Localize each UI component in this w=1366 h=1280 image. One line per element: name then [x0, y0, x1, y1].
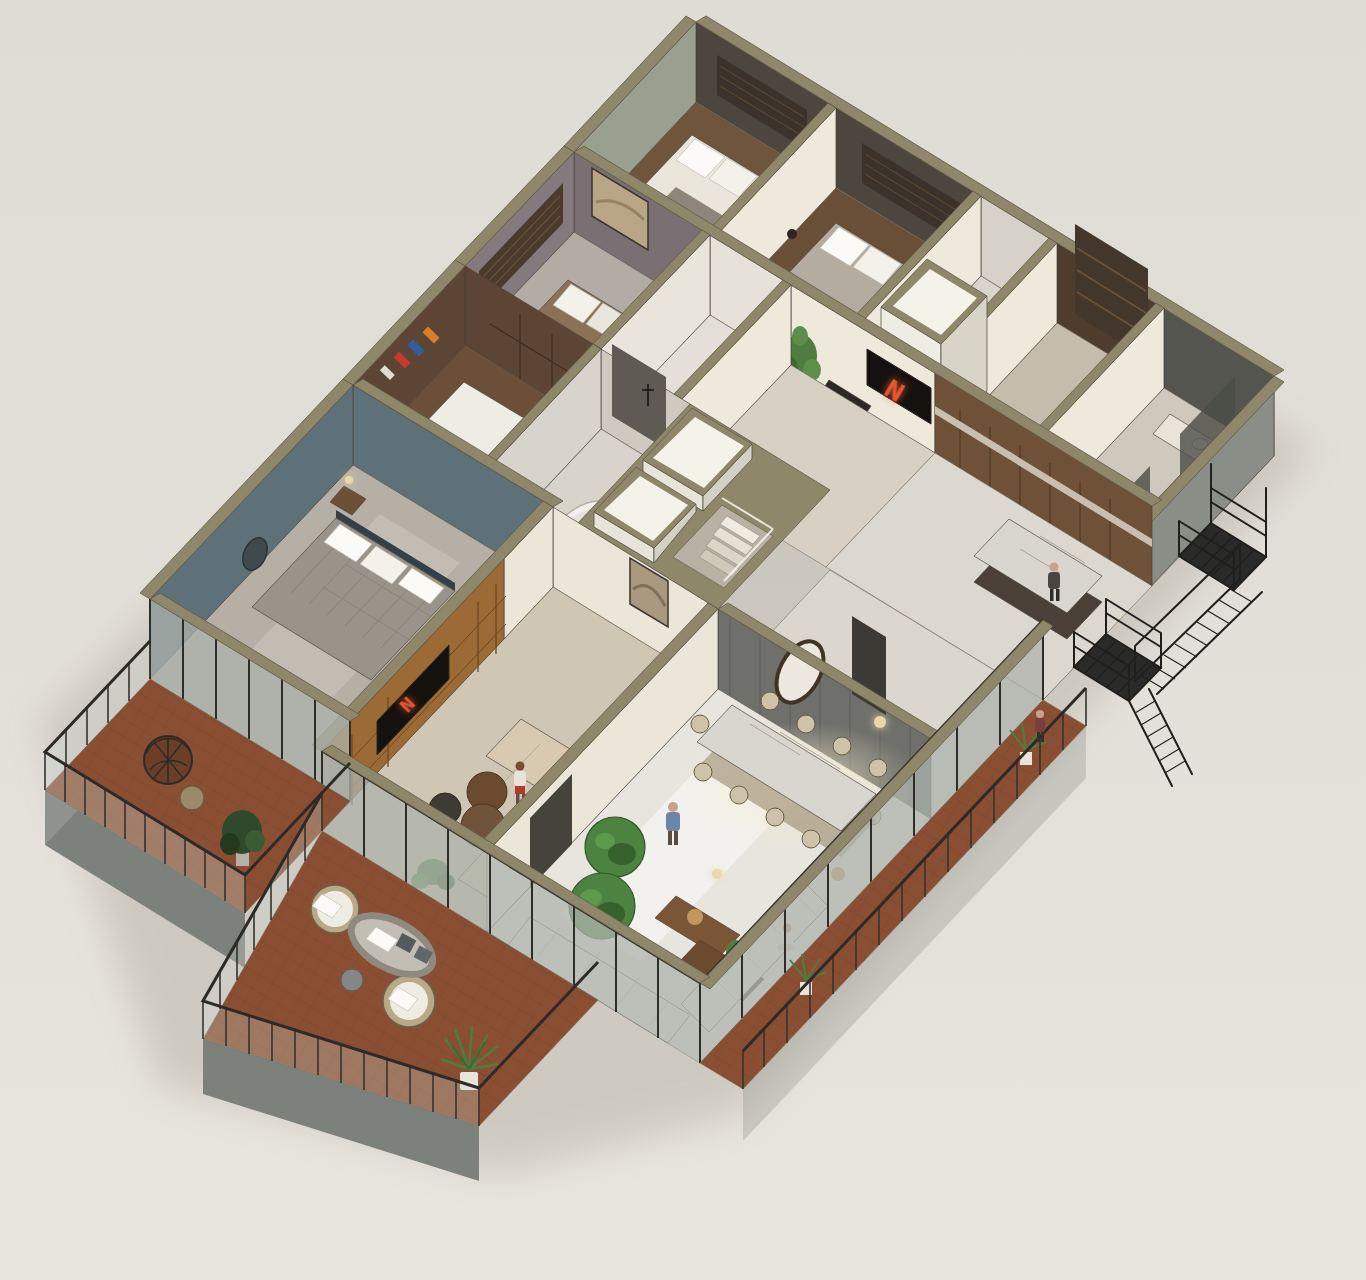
dining-chair: [869, 759, 887, 777]
dining-chair: [797, 715, 815, 733]
dining-chair: [730, 786, 748, 804]
lamp-icon: [345, 476, 353, 484]
table-lamp-icon: [787, 229, 797, 239]
dining-chair: [766, 808, 784, 826]
dining-chair: [691, 715, 709, 733]
dining-chair: [833, 737, 851, 755]
dining-chair: [802, 830, 820, 848]
sconce-light-icon: [874, 716, 886, 728]
floor-lamp-icon: [712, 869, 722, 879]
round-lounge-chair: [383, 975, 435, 1027]
green-armchair: [585, 817, 645, 877]
dining-chair: [694, 763, 712, 781]
floorplan-render: N: [0, 0, 1366, 1280]
pouf-stool: [341, 969, 363, 991]
isometric-scene: N: [0, 0, 1366, 1280]
bistro-table: [180, 786, 204, 810]
wire-lounge-chair: [144, 736, 192, 784]
table-tray: [687, 909, 703, 925]
dining-chair: [761, 692, 779, 710]
